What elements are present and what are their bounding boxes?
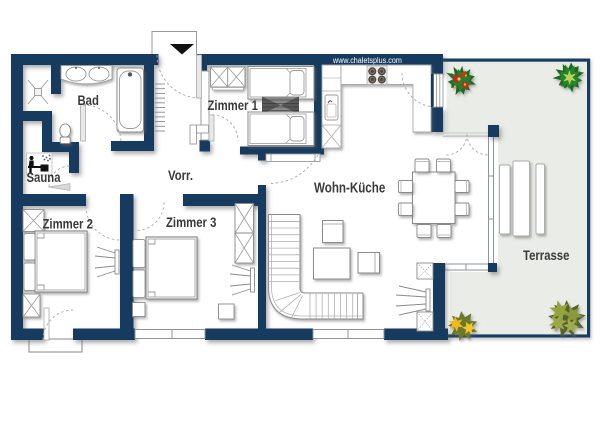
svg-text:Zimmer 1: Zimmer 1 [208, 98, 258, 113]
svg-text:Zimmer 2: Zimmer 2 [43, 217, 93, 232]
svg-text:Wohn-Küche: Wohn-Küche [314, 179, 385, 196]
svg-text:www.chaletsplus.com: www.chaletsplus.com [332, 56, 402, 65]
svg-text:Bad: Bad [78, 93, 99, 108]
svg-text:Terrasse: Terrasse [523, 248, 569, 263]
svg-text:Sauna: Sauna [27, 170, 61, 185]
svg-text:Vorr.: Vorr. [168, 168, 193, 183]
svg-text:Zimmer 3: Zimmer 3 [166, 215, 216, 230]
